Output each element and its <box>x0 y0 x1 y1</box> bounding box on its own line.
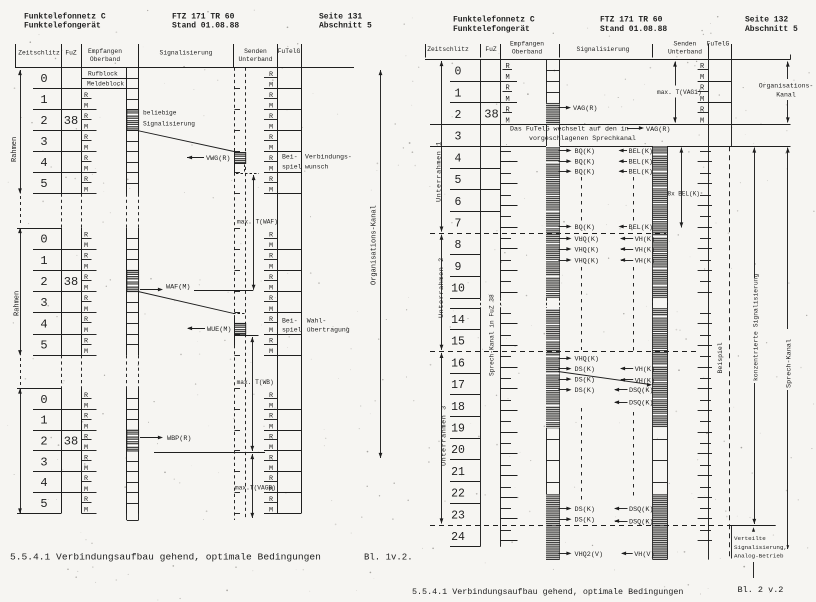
svg-text:16: 16 <box>451 357 465 370</box>
svg-text:Empfangen: Empfangen <box>510 41 544 48</box>
svg-text:BQ(K): BQ(K) <box>575 224 595 232</box>
svg-text:Verbindungs-: Verbindungs- <box>305 154 352 161</box>
svg-text:7: 7 <box>455 217 462 230</box>
svg-text:Signalisierung: Signalisierung <box>577 46 630 53</box>
svg-text:WUE(M): WUE(M) <box>207 326 231 334</box>
svg-text:VH(K): VH(K) <box>635 366 655 374</box>
svg-text:1: 1 <box>40 93 47 107</box>
svg-text:4: 4 <box>40 317 47 331</box>
svg-text:beliebige: beliebige <box>143 110 177 117</box>
svg-text:14: 14 <box>451 314 465 327</box>
svg-text:Zeitschlitz: Zeitschlitz <box>18 50 60 57</box>
svg-text:Wahl-: Wahl- <box>307 318 327 325</box>
svg-text:BEL(K): BEL(K) <box>629 224 653 232</box>
svg-text:Rahmen: Rahmen <box>14 291 22 316</box>
svg-text:3: 3 <box>40 135 47 149</box>
svg-text:Analog-Betrieb: Analog-Betrieb <box>734 553 784 560</box>
svg-text:max. T(VAG1): max. T(VAG1) <box>657 89 702 96</box>
svg-text:wunsch: wunsch <box>305 164 329 171</box>
svg-text:24: 24 <box>451 531 465 544</box>
svg-text:15: 15 <box>451 336 465 349</box>
svg-text:Abschnitt 5: Abschnitt 5 <box>745 25 798 34</box>
svg-text:0: 0 <box>40 72 47 86</box>
svg-text:2: 2 <box>455 109 462 122</box>
svg-text:R: R <box>84 454 88 462</box>
svg-text:VH(V): VH(V) <box>634 551 654 559</box>
svg-text:M: M <box>269 327 273 335</box>
svg-text:0: 0 <box>40 393 47 407</box>
svg-text:Unterband: Unterband <box>238 56 272 63</box>
svg-text:Unterrahmen 1: Unterrahmen 1 <box>436 141 444 202</box>
svg-text:5: 5 <box>40 177 47 191</box>
svg-text:Funktelefongerät: Funktelefongerät <box>24 22 101 31</box>
svg-text:Beispiel: Beispiel <box>717 342 724 373</box>
svg-text:DS(K): DS(K) <box>575 377 595 385</box>
svg-text:Signalisierung: Signalisierung <box>160 50 213 57</box>
svg-text:38: 38 <box>64 435 78 449</box>
svg-text:Funktelefonnetz C: Funktelefonnetz C <box>24 13 106 22</box>
svg-text:VHQ(K): VHQ(K) <box>575 236 599 244</box>
svg-text:WBP(R): WBP(R) <box>167 435 191 443</box>
svg-text:20: 20 <box>451 444 465 457</box>
svg-text:DSQ(K): DSQ(K) <box>629 506 653 514</box>
svg-text:5: 5 <box>40 497 47 511</box>
svg-text:übertragung: übertragung <box>307 327 350 334</box>
svg-text:0: 0 <box>455 66 462 79</box>
svg-text:M: M <box>84 327 88 335</box>
svg-text:BEL(K): BEL(K) <box>629 169 653 177</box>
svg-text:M: M <box>269 348 273 356</box>
svg-text:5: 5 <box>40 339 47 353</box>
svg-text:Zeitschlitz: Zeitschlitz <box>427 46 469 53</box>
svg-text:FuZ: FuZ <box>485 46 497 53</box>
svg-text:9: 9 <box>455 261 462 274</box>
svg-text:Kanal: Kanal <box>776 92 796 99</box>
svg-text:19: 19 <box>451 423 465 436</box>
svg-text:konzentrierte Signalisierung: konzentrierte Signalisierung <box>753 273 760 381</box>
svg-text:Bl. 1v.2.: Bl. 1v.2. <box>364 553 413 563</box>
svg-text:6: 6 <box>455 196 462 209</box>
svg-text:Sprech-Kanal: Sprech-Kanal <box>786 339 794 388</box>
svg-text:VAG(R): VAG(R) <box>646 126 670 134</box>
svg-text:VH(K): VH(K) <box>635 236 655 244</box>
svg-text:0: 0 <box>40 233 47 247</box>
svg-text:8: 8 <box>455 239 462 252</box>
svg-text:Meldeblock: Meldeblock <box>87 81 124 88</box>
svg-text:38: 38 <box>64 275 78 289</box>
svg-text:BQ(K): BQ(K) <box>575 159 595 167</box>
svg-text:Bl. 2 v.2: Bl. 2 v.2 <box>738 585 784 595</box>
svg-text:Oberband: Oberband <box>90 56 120 63</box>
svg-text:Abschnitt 5: Abschnitt 5 <box>319 22 372 31</box>
svg-text:Seite 132: Seite 132 <box>745 16 788 25</box>
svg-text:M: M <box>700 118 704 126</box>
svg-text:3: 3 <box>40 296 47 310</box>
svg-text:8x BEL(K): 8x BEL(K) <box>668 191 700 198</box>
svg-text:M: M <box>506 96 510 104</box>
svg-text:R: R <box>269 454 273 462</box>
svg-text:VH(K): VH(K) <box>635 257 655 265</box>
svg-text:Unterrahmen 2: Unterrahmen 2 <box>438 257 446 318</box>
svg-text:R: R <box>84 434 88 442</box>
svg-text:BEL(K): BEL(K) <box>629 159 653 167</box>
svg-text:VAG(R): VAG(R) <box>573 105 597 113</box>
svg-text:23: 23 <box>451 509 465 522</box>
svg-text:Senden: Senden <box>244 48 267 55</box>
svg-text:DSQ(K): DSQ(K) <box>629 518 653 526</box>
svg-text:M: M <box>84 444 88 452</box>
svg-text:M: M <box>269 444 273 452</box>
svg-text:max.T(VAGB): max.T(VAGB) <box>235 485 276 492</box>
svg-text:38: 38 <box>64 114 78 128</box>
svg-text:Organisations-: Organisations- <box>759 83 814 90</box>
svg-text:VHQ(K): VHQ(K) <box>575 257 599 265</box>
svg-text:17: 17 <box>451 379 465 392</box>
svg-text:M: M <box>84 348 88 356</box>
svg-text:Unterband: Unterband <box>668 49 702 56</box>
svg-text:Das FuTelG wechselt auf den in: Das FuTelG wechselt auf den in <box>510 126 629 133</box>
svg-text:DSQ(K): DSQ(K) <box>629 387 653 395</box>
svg-text:Stand 01.08.88: Stand 01.08.88 <box>172 22 239 31</box>
svg-text:Funktelefonnetz C: Funktelefonnetz C <box>453 16 535 25</box>
svg-text:spiel: spiel <box>282 327 302 334</box>
svg-text:Organisations-Kanal: Organisations-Kanal <box>371 205 379 285</box>
svg-text:3: 3 <box>455 131 462 144</box>
svg-text:R: R <box>269 434 273 442</box>
svg-text:5.5.4.1 Verbindungsaufbau gehe: 5.5.4.1 Verbindungsaufbau gehend, optima… <box>412 587 683 597</box>
svg-text:R: R <box>269 316 273 324</box>
svg-text:Signalisierung,: Signalisierung, <box>734 544 787 551</box>
svg-text:DS(K): DS(K) <box>575 506 595 514</box>
svg-text:M: M <box>506 74 510 82</box>
svg-text:BQ(K): BQ(K) <box>575 169 595 177</box>
svg-text:M: M <box>269 242 273 250</box>
svg-text:M: M <box>700 74 704 82</box>
svg-text:DS(K): DS(K) <box>575 387 595 395</box>
svg-text:Funktelefongerät: Funktelefongerät <box>453 25 530 34</box>
svg-text:21: 21 <box>451 466 465 479</box>
svg-text:WAF(M): WAF(M) <box>166 284 190 292</box>
svg-text:FTZ 171 TR 60: FTZ 171 TR 60 <box>172 13 235 22</box>
svg-text:VHQ(K): VHQ(K) <box>575 356 599 364</box>
svg-text:R: R <box>84 316 88 324</box>
svg-text:R: R <box>269 475 273 483</box>
svg-text:Oberband: Oberband <box>512 49 542 56</box>
svg-text:max. T(WAF): max. T(WAF) <box>237 219 278 226</box>
svg-text:Unterrahmen 3: Unterrahmen 3 <box>441 405 449 466</box>
svg-text:BQ(K): BQ(K) <box>575 148 595 156</box>
svg-text:Signalisierung: Signalisierung <box>143 121 195 128</box>
svg-text:1: 1 <box>40 254 47 268</box>
svg-text:M: M <box>84 242 88 250</box>
svg-text:3: 3 <box>40 455 47 469</box>
svg-text:4: 4 <box>455 152 462 165</box>
svg-text:Rufblock: Rufblock <box>88 71 118 78</box>
svg-text:1: 1 <box>455 87 462 100</box>
svg-text:10: 10 <box>451 283 465 296</box>
svg-text:4: 4 <box>40 156 47 170</box>
svg-text:DS(K): DS(K) <box>575 366 595 374</box>
svg-text:BEL(K): BEL(K) <box>629 148 653 156</box>
svg-text:FuZ: FuZ <box>65 50 77 57</box>
svg-text:DSQ(K): DSQ(K) <box>629 400 653 408</box>
svg-text:Seite 131: Seite 131 <box>319 13 362 22</box>
svg-text:Empfangen: Empfangen <box>88 48 122 55</box>
svg-text:spiel: spiel <box>282 164 302 171</box>
svg-text:2: 2 <box>40 275 47 289</box>
svg-text:4: 4 <box>40 476 47 490</box>
svg-text:Sprech-Kanal in FuZ 38: Sprech-Kanal in FuZ 38 <box>489 294 496 376</box>
svg-text:VHQ2(V): VHQ2(V) <box>575 551 604 559</box>
svg-text:vorgeschlagenen Sprechkanal: vorgeschlagenen Sprechkanal <box>529 135 636 142</box>
svg-text:VWG(R): VWG(R) <box>206 155 230 163</box>
svg-text:Senden: Senden <box>674 41 697 48</box>
svg-text:FuTelG: FuTelG <box>707 41 730 48</box>
svg-text:22: 22 <box>451 488 465 501</box>
svg-text:FTZ 171 TR 60: FTZ 171 TR 60 <box>600 16 663 25</box>
svg-text:Rahmen: Rahmen <box>11 137 19 162</box>
svg-text:18: 18 <box>451 401 465 414</box>
svg-text:2: 2 <box>40 114 47 128</box>
svg-text:5.5.4.1 Verbindungsaufbau gehe: 5.5.4.1 Verbindungsaufbau gehend, optima… <box>10 552 321 563</box>
svg-text:38: 38 <box>484 108 498 122</box>
svg-text:DS(K): DS(K) <box>575 517 595 525</box>
svg-text:R: R <box>84 475 88 483</box>
svg-text:VH(K): VH(K) <box>635 246 655 254</box>
svg-text:Bei-: Bei- <box>282 154 298 161</box>
svg-text:2: 2 <box>40 435 47 449</box>
svg-text:FuTelG: FuTelG <box>278 48 301 55</box>
svg-text:VHQ(K): VHQ(K) <box>575 246 599 254</box>
svg-text:Stand 01.08.88: Stand 01.08.88 <box>600 25 667 34</box>
svg-text:1: 1 <box>40 414 47 428</box>
svg-text:5: 5 <box>455 174 462 187</box>
svg-text:Verteilte: Verteilte <box>734 535 766 542</box>
svg-text:max. T(WB): max. T(WB) <box>237 379 274 386</box>
svg-text:Bei-: Bei- <box>282 318 298 325</box>
